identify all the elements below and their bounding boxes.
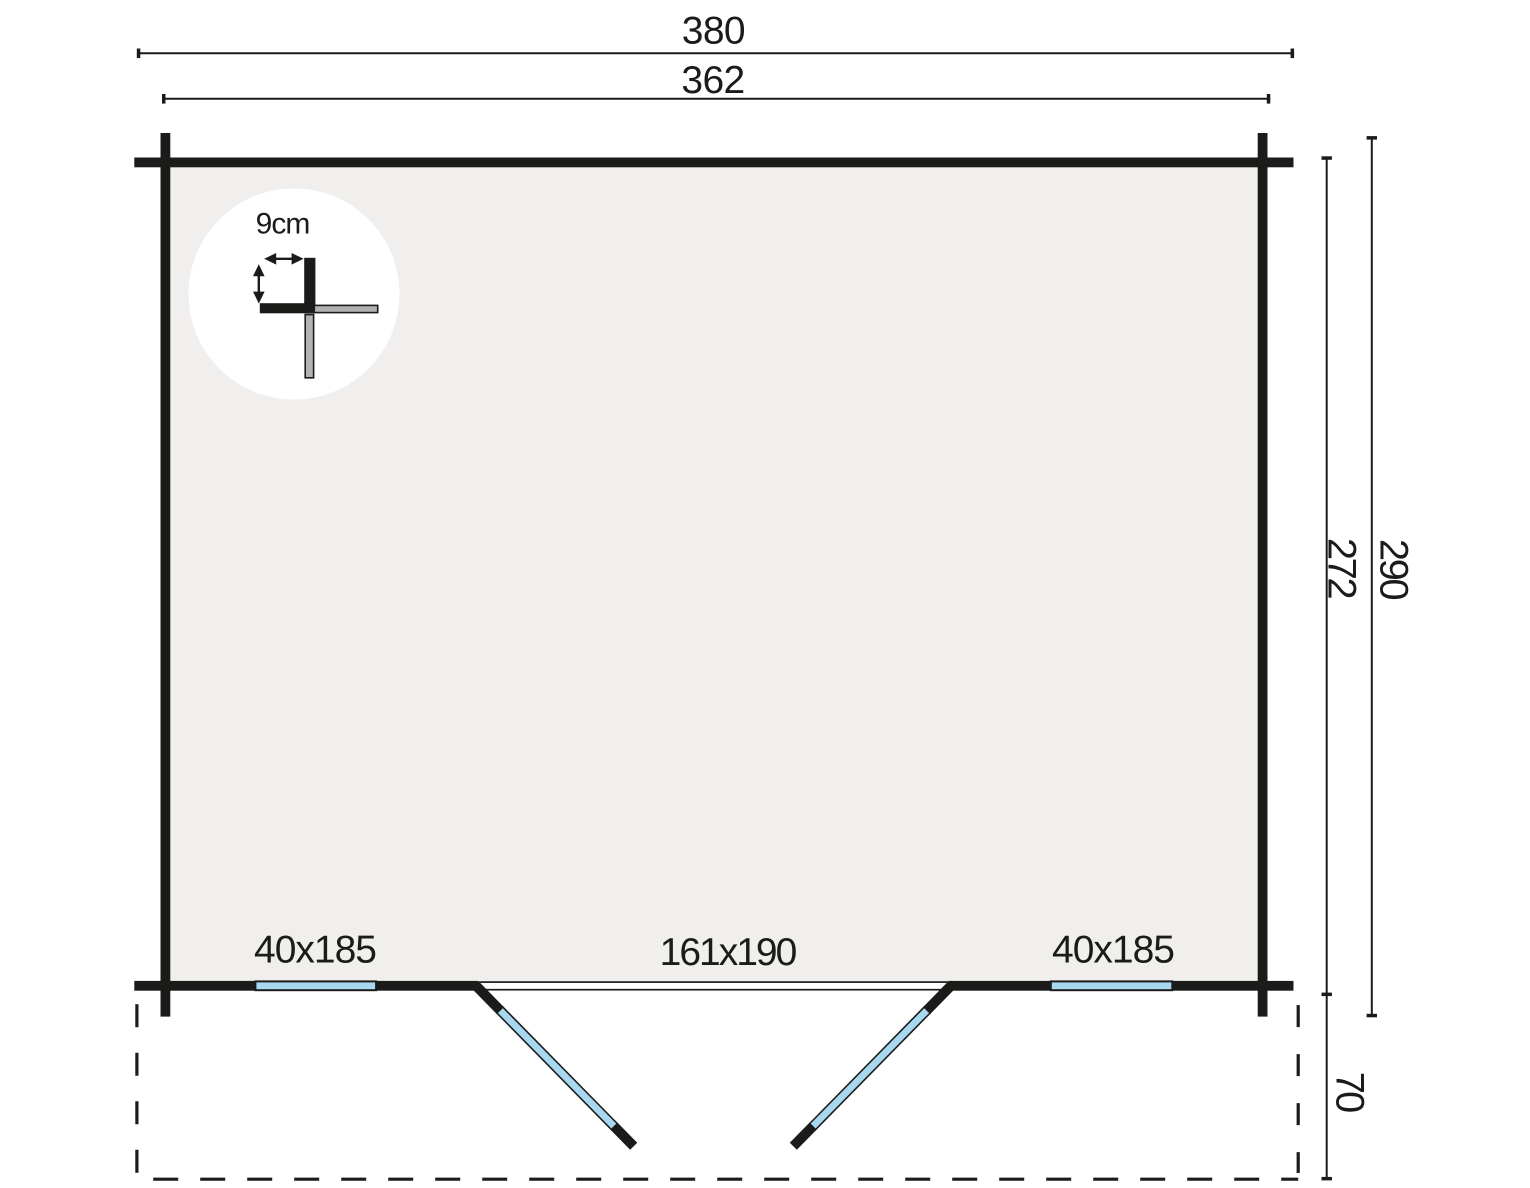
svg-text:161x190: 161x190 (660, 931, 797, 974)
svg-text:380: 380 (682, 10, 745, 53)
svg-text:40x185: 40x185 (1052, 929, 1174, 972)
svg-text:40x185: 40x185 (254, 929, 376, 972)
svg-text:290: 290 (1372, 539, 1416, 599)
svg-text:272: 272 (1320, 538, 1364, 598)
svg-text:70: 70 (1328, 1072, 1372, 1112)
svg-text:9cm: 9cm (256, 208, 310, 241)
svg-text:362: 362 (681, 59, 744, 102)
